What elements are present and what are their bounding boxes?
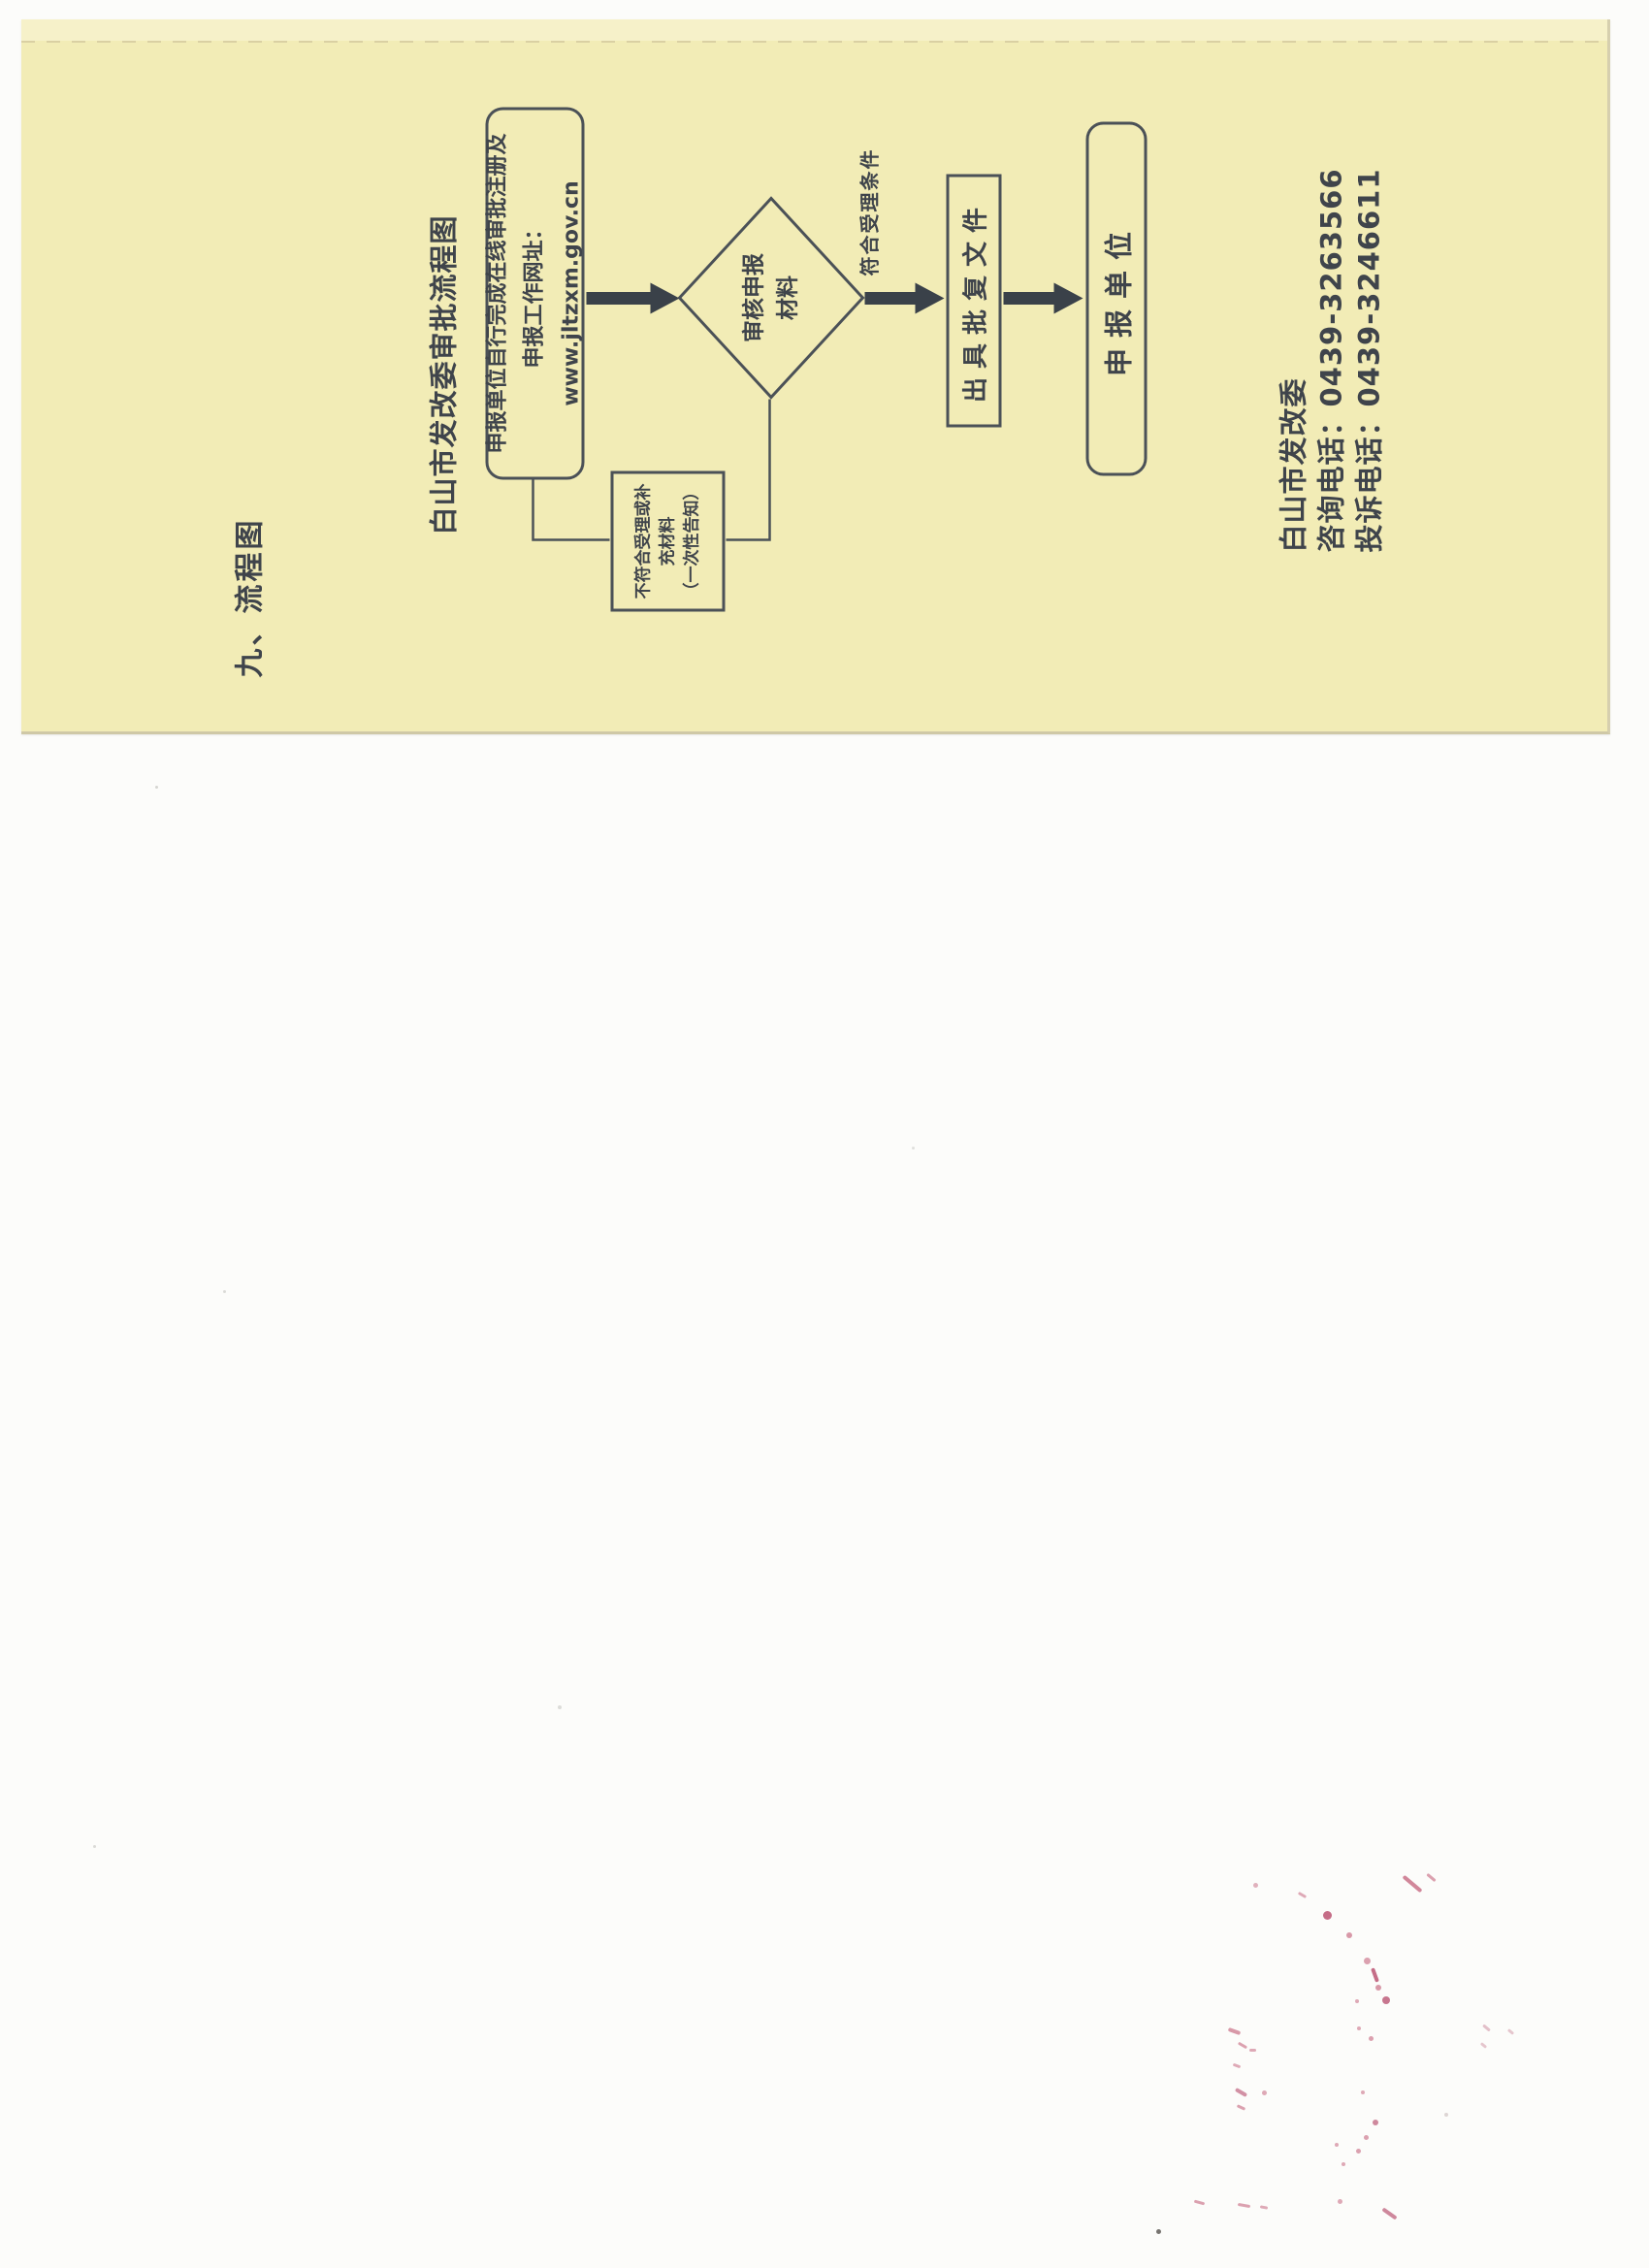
contact-block: 白山市发改委 咨询电话：0439-3263566 投诉电话：0439-32466…	[1275, 168, 1388, 552]
arrow-approve-to-end-head	[1053, 282, 1083, 313]
flowchart-start-box: 申报单位自行完成在线审批注册及 申报工作网址：www.jltzxm.gov.cn	[485, 107, 584, 479]
connector-start-to-reject	[533, 479, 609, 539]
contact-complaint-phone: 投诉电话：0439-3246611	[1350, 168, 1388, 552]
flowchart-reject-box: 不符合受理或补 充材料 （一次性告知）	[610, 470, 725, 611]
scanned-page: 九、流程图 白山市发改委审批流程图 申报单位自行完成在线审批注册及 申报工作网址…	[0, 0, 1649, 2268]
yellow-paper-sheet: 九、流程图 白山市发改委审批流程图 申报单位自行完成在线审批注册及 申报工作网址…	[21, 19, 1610, 734]
connector-reject-to-decision	[726, 399, 769, 539]
decision-line1: 审核申报	[737, 253, 771, 342]
start-box-line1: 申报单位自行完成在线审批注册及	[479, 133, 516, 453]
flowchart-approve-box: 出具批复文件	[946, 174, 1001, 427]
section-heading: 九、流程图	[225, 517, 268, 677]
reject-box-line3: （一次性告知）	[680, 483, 704, 599]
contact-org: 白山市发改委	[1275, 168, 1312, 552]
flowchart-title: 白山市发改委审批流程图	[421, 19, 462, 729]
reject-box-line2: 充材料	[656, 516, 680, 566]
flowchart-content: 九、流程图 白山市发改委审批流程图 申报单位自行完成在线审批注册及 申报工作网址…	[21, 19, 1607, 729]
arrow-start-to-decision-head	[650, 282, 679, 313]
reject-box-line1: 不符合受理或补	[631, 483, 656, 599]
flowchart-end-box: 申报单位	[1085, 121, 1147, 475]
decision-line2: 材料	[771, 275, 805, 320]
arrow-decision-to-approve-head	[915, 282, 944, 313]
contact-consult-phone: 咨询电话：0439-3263566	[1312, 168, 1350, 552]
flowchart-decision-label: 审核申报 材料	[679, 198, 862, 397]
start-box-line2: 申报工作网址：www.jltzxm.gov.cn	[516, 110, 590, 476]
condition-label: 符合受理条件	[854, 147, 882, 275]
